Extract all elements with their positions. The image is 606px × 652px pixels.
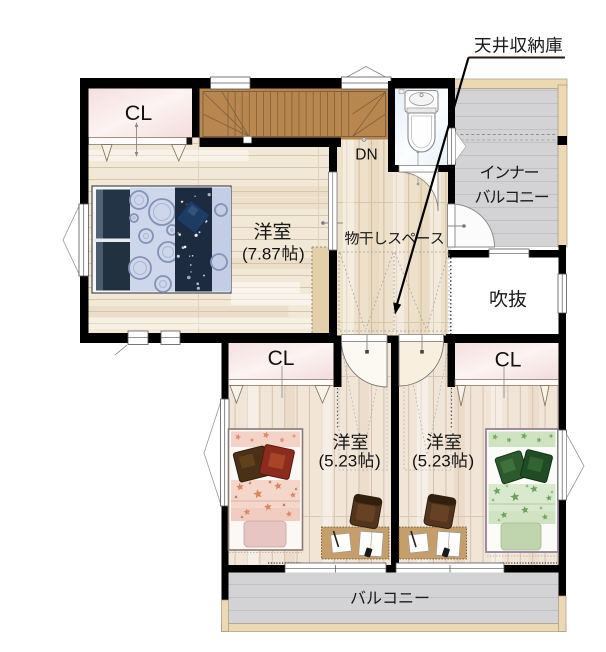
svg-text:): ) xyxy=(469,452,475,471)
svg-text:(5.23: (5.23 xyxy=(319,452,358,471)
svg-text:CL: CL xyxy=(495,349,522,372)
svg-text:DN: DN xyxy=(355,147,377,164)
svg-text:CL: CL xyxy=(268,347,295,370)
svg-text:(7.87: (7.87 xyxy=(242,245,281,264)
svg-text:): ) xyxy=(299,245,305,264)
svg-text:): ) xyxy=(375,452,381,471)
svg-text:(5.23: (5.23 xyxy=(412,452,451,471)
svg-text:CL: CL xyxy=(125,101,153,125)
